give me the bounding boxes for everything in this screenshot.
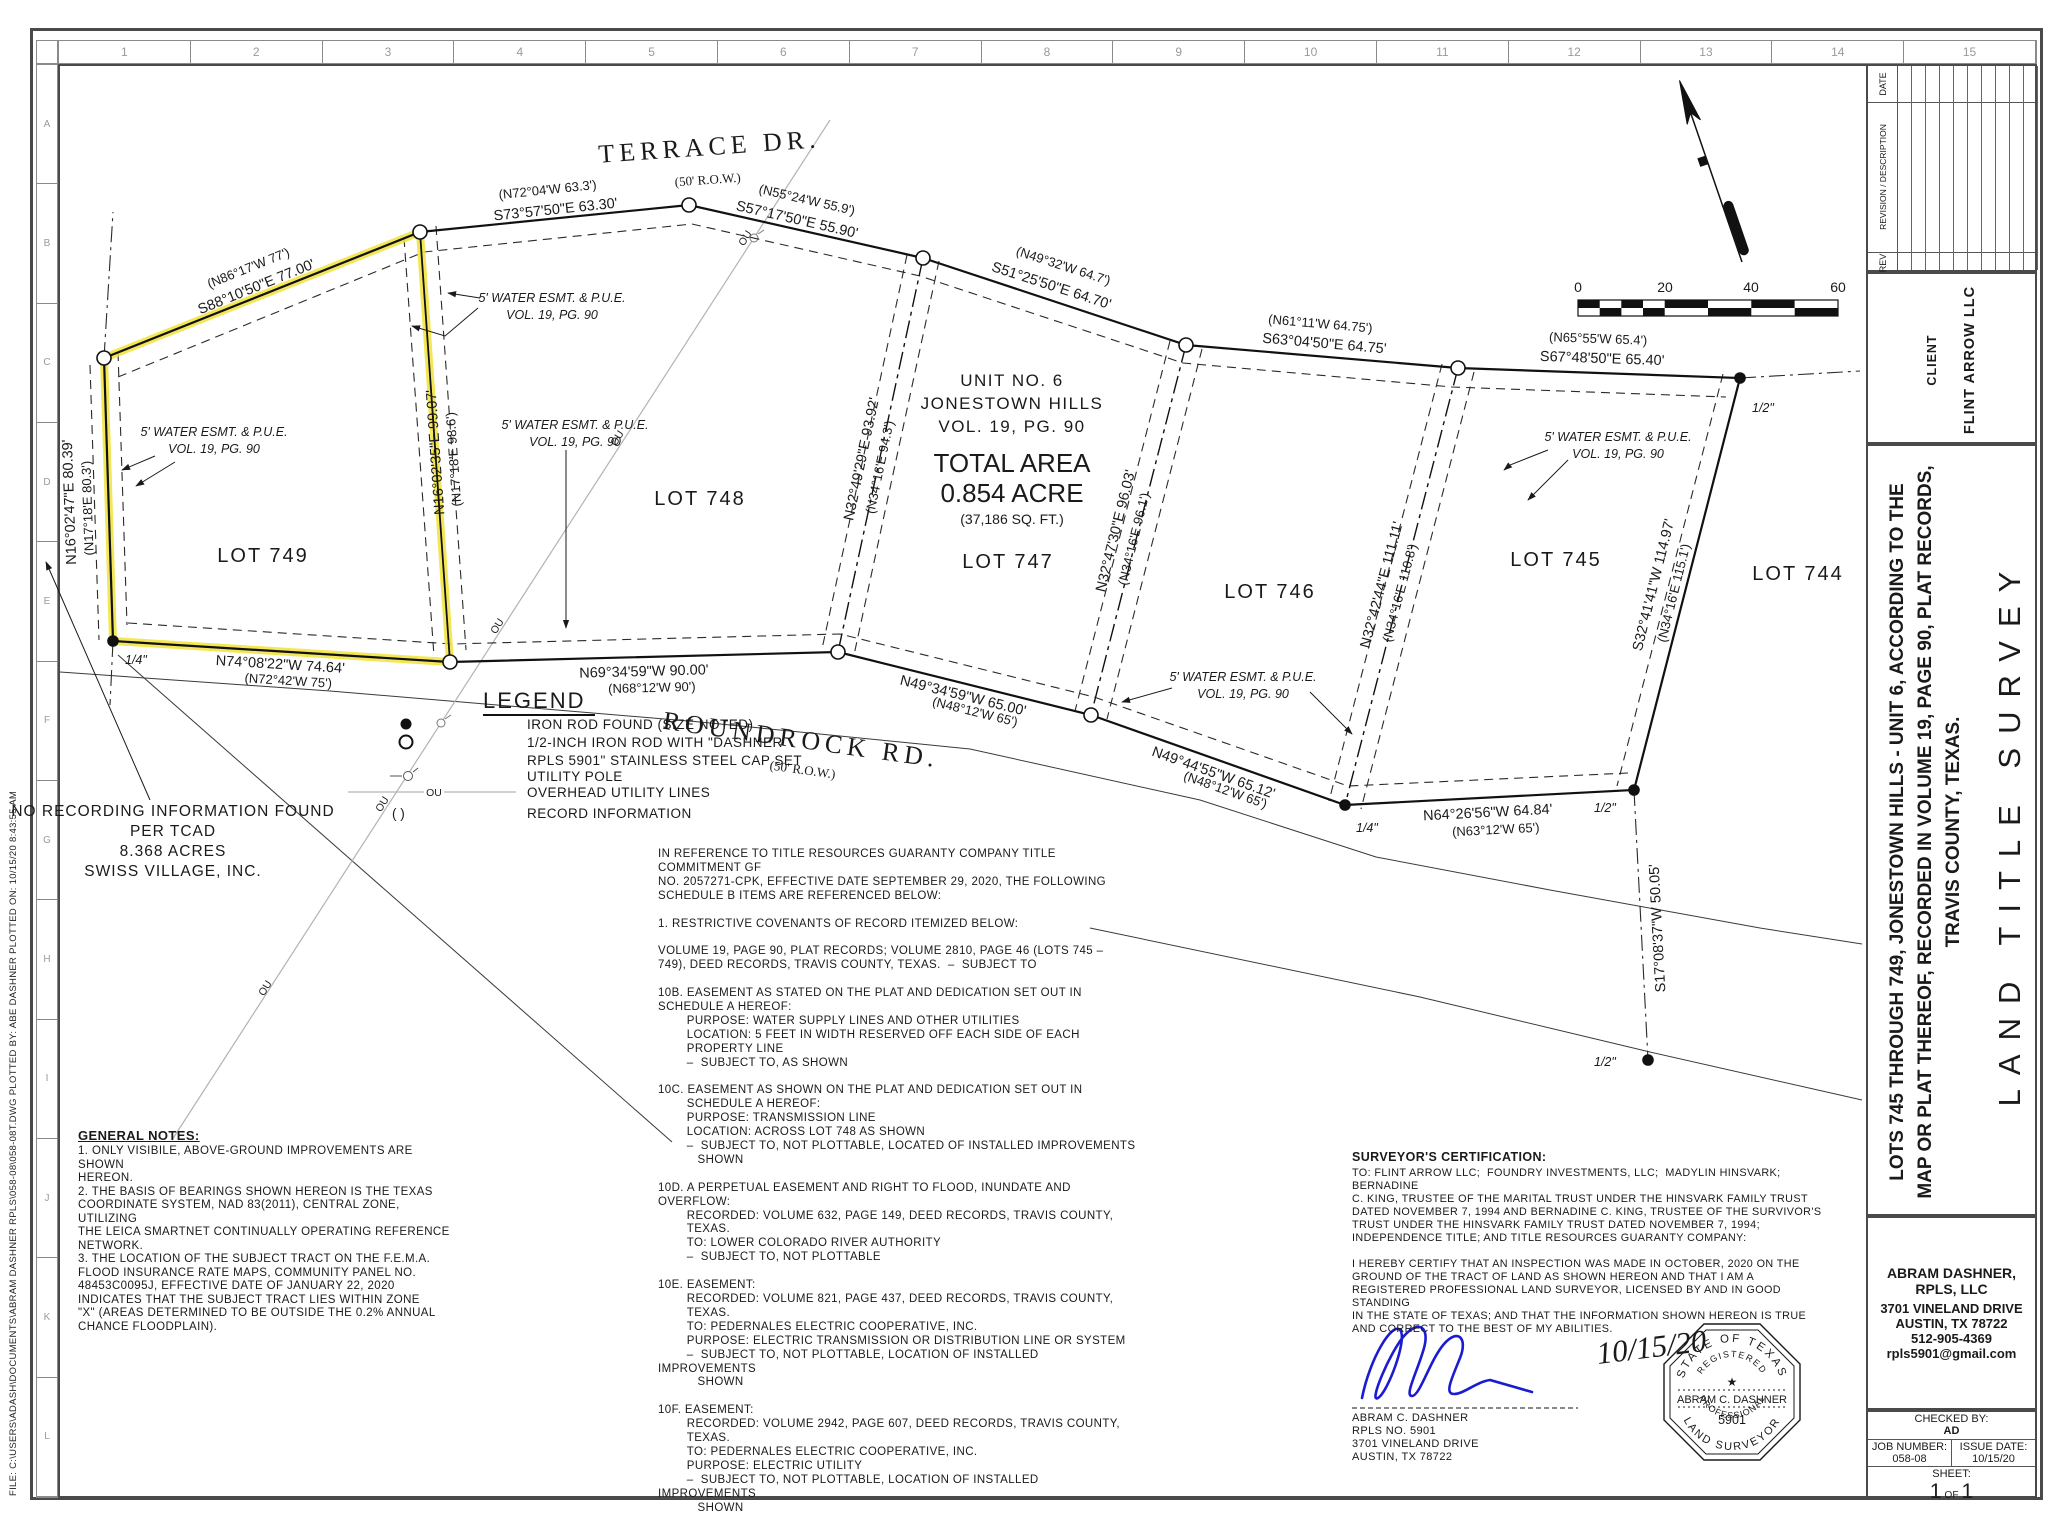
- surveyor-name: ABRAM C. DASHNER: [1352, 1412, 1479, 1425]
- certification-to: TO: FLINT ARROW LLC; FOUNDRY INVESTMENTS…: [1352, 1167, 1827, 1245]
- record-symbol: ( ): [392, 806, 405, 821]
- firm-addr2: AUSTIN, TX 78722: [1896, 1316, 2008, 1331]
- survey-type-title: LAND TITLE SURVEY: [1992, 558, 2028, 1107]
- svg-text:60: 60: [1830, 279, 1846, 295]
- svg-text:(N65°55'W 65.4'): (N65°55'W 65.4'): [1549, 329, 1648, 347]
- rod-size-label: 1/4": [1356, 821, 1378, 835]
- sheet-title-line2: MAP OR PLAT THEREOF, RECORDED IN VOLUME …: [1915, 465, 1937, 1198]
- revision-desc-header: REVISION / DESCRIPTION: [1878, 124, 1888, 230]
- svg-text:RECORD INFORMATION: RECORD INFORMATION: [527, 806, 692, 821]
- svg-text:5' WATER ESMT. & P.U.E.: 5' WATER ESMT. & P.U.E.: [501, 418, 648, 432]
- rod-size-label: 1/2": [1594, 1055, 1616, 1069]
- surveyor-addr2: AUSTIN, TX 78722: [1352, 1451, 1479, 1464]
- svg-text:5' WATER ESMT. & P.U.E.: 5' WATER ESMT. & P.U.E.: [1169, 670, 1316, 684]
- checked-by-label: CHECKED BY:: [1915, 1413, 1989, 1425]
- revision-grid: [1898, 66, 2039, 270]
- svg-text:VOL. 19, PG. 90: VOL. 19, PG. 90: [529, 435, 621, 449]
- issue-date-value: 10/15/20: [1972, 1453, 2015, 1465]
- iron-rod-found-icon: [401, 719, 412, 730]
- svg-text:OVERHEAD UTILITY LINES: OVERHEAD UTILITY LINES: [527, 785, 710, 800]
- job-number-value: 058-08: [1892, 1453, 1926, 1465]
- surveyor-rpls: RPLS NO. 5901: [1352, 1425, 1479, 1438]
- rod-size-label: 1/4": [125, 653, 147, 667]
- svg-text:8.368 ACRES: 8.368 ACRES: [120, 843, 227, 860]
- svg-text:5' WATER ESMT. & P.U.E.: 5' WATER ESMT. & P.U.E.: [1544, 430, 1691, 444]
- svg-text:N69°34'59"W 90.00': N69°34'59"W 90.00': [579, 662, 709, 681]
- issue-date-label: ISSUE DATE:: [1960, 1441, 2028, 1453]
- ou-label: OU: [373, 795, 392, 815]
- info-box: CHECKED BY: AD JOB NUMBER: 058-08 ISSUE …: [1866, 1410, 2037, 1498]
- signature-scribble: [1362, 1327, 1532, 1399]
- lot-746-label: LOT 746: [1224, 581, 1315, 603]
- svg-text:UTILITY POLE: UTILITY POLE: [527, 769, 623, 784]
- svg-text:20: 20: [1657, 279, 1673, 295]
- north-arrow-icon: [1672, 77, 1752, 264]
- revision-table: DATE REVISION / DESCRIPTION REV: [1866, 64, 2037, 272]
- svg-text:5' WATER ESMT. & P.U.E.: 5' WATER ESMT. & P.U.E.: [478, 291, 625, 305]
- ou-line-legend-icon: OU: [348, 787, 516, 799]
- sheet-title-line3: TRAVIS COUNTY, TEXAS.: [1943, 717, 1965, 948]
- svg-text:S67°48'50"E 65.40': S67°48'50"E 65.40': [1540, 349, 1665, 369]
- svg-text:VOL. 19, PG. 90: VOL. 19, PG. 90: [1197, 687, 1289, 701]
- sheet-of: OF: [1945, 1490, 1959, 1501]
- certification-title: SURVEYOR'S CERTIFICATION:: [1352, 1150, 1827, 1164]
- svg-text:40: 40: [1743, 279, 1759, 295]
- total-area-sqft: (37,186 SQ. FT.): [960, 511, 1063, 527]
- lot749-highlight: [104, 232, 450, 662]
- certification-body: I HEREBY CERTIFY THAT AN INSPECTION WAS …: [1352, 1258, 1827, 1336]
- total-area-label: TOTAL AREA: [933, 448, 1091, 478]
- scale-bar: 0 20 40 60: [1574, 279, 1846, 316]
- unit-area-block: UNIT NO. 6 JONESTOWN HILLS VOL. 19, PG. …: [921, 371, 1104, 527]
- sheet-label: SHEET:: [1932, 1468, 1971, 1480]
- sheet-number: 1: [1930, 1480, 1942, 1503]
- survey-sheet: FILE: C:\USERS\ADASH\DOCUMENTS\ABRAM DAS…: [0, 0, 2048, 1536]
- rod-size-label: 1/2": [1752, 401, 1774, 415]
- utility-pole-legend-icon: [390, 768, 418, 781]
- revision-date-header: DATE: [1878, 72, 1888, 95]
- client-label: CLIENT: [1925, 334, 1939, 385]
- ou-label: OU: [256, 979, 275, 999]
- svg-text:0: 0: [1574, 279, 1582, 295]
- no-recording-note: NO RECORDING INFORMATION FOUND PER TCAD …: [11, 562, 334, 880]
- sheet-title-box: LOTS 745 THROUGH 749, JONESTOWN HILLS - …: [1866, 444, 2037, 1216]
- boundary-lines: [104, 205, 1740, 805]
- legend: LEGEND OU ( ) IRON ROD FOUND (SIZE NOTED…: [348, 688, 802, 821]
- lot-747-label: LOT 747: [962, 551, 1053, 573]
- terrace-row-label: (50' R.O.W.): [674, 170, 741, 190]
- svg-text:VOL. 19, PG. 90: VOL. 19, PG. 90: [506, 308, 598, 322]
- ou-label: OU: [488, 617, 507, 637]
- revision-rev-header: REV: [1878, 254, 1888, 273]
- svg-text:SWISS VILLAGE, INC.: SWISS VILLAGE, INC.: [84, 863, 262, 880]
- easement-lines: [90, 224, 1726, 809]
- firm-email: rpls5901@gmail.com: [1887, 1346, 2017, 1361]
- svg-text:VOL. 19, PG. 90: VOL. 19, PG. 90: [168, 442, 260, 456]
- lot-749-label: LOT 749: [217, 545, 308, 567]
- svg-text:(N68°12'W 90'): (N68°12'W 90'): [608, 679, 696, 696]
- total-area-value: 0.854 ACRE: [940, 478, 1083, 508]
- general-notes-title: GENERAL NOTES:: [78, 1128, 458, 1143]
- svg-text:5' WATER ESMT. & P.U.E.: 5' WATER ESMT. & P.U.E.: [140, 425, 287, 439]
- lot-745-label: LOT 745: [1510, 549, 1601, 571]
- client-name: FLINT ARROW LLC: [1962, 286, 1978, 434]
- svg-text:(N63°12'W 65'): (N63°12'W 65'): [1452, 820, 1540, 840]
- lot-744-label: LOT 744: [1752, 563, 1843, 585]
- seal-star-icon: ★: [1727, 1375, 1738, 1389]
- svg-text:PER TCAD: PER TCAD: [130, 823, 216, 840]
- iron-rod-set-icon: [400, 736, 413, 749]
- svg-text:OU: OU: [426, 787, 442, 799]
- svg-text:N16°02'47"E 80.39': N16°02'47"E 80.39': [60, 439, 80, 565]
- water-easement-labels: 5' WATER ESMT. & P.U.E.VOL. 19, PG. 90 5…: [140, 291, 1691, 701]
- svg-text:VOL. 19, PG. 90: VOL. 19, PG. 90: [1572, 447, 1664, 461]
- legend-title: LEGEND: [483, 688, 585, 713]
- svg-text:S17°08'37"W 50.05': S17°08'37"W 50.05': [1647, 863, 1670, 992]
- job-number-label: JOB NUMBER:: [1872, 1441, 1947, 1453]
- general-notes-text: 1. ONLY VISIBILE, ABOVE-GROUND IMPROVEME…: [78, 1145, 458, 1334]
- firm-name: ABRAM DASHNER, RPLS, LLC: [1868, 1265, 2035, 1297]
- schedule-b-notes: IN REFERENCE TO TITLE RESOURCES GUARANTY…: [658, 848, 1136, 1516]
- checked-by-value: AD: [1944, 1425, 1960, 1437]
- sheet-title-line1: LOTS 745 THROUGH 749, JONESTOWN HILLS - …: [1887, 483, 1909, 1180]
- rod-size-label: 1/2": [1594, 801, 1616, 815]
- seal-name: ABRAM C. DASHNER: [1677, 1394, 1787, 1406]
- surveyor-addr1: 3701 VINELAND DRIVE: [1352, 1438, 1479, 1451]
- unit-line: UNIT NO. 6: [960, 371, 1063, 390]
- sheet-total: 1: [1962, 1480, 1974, 1503]
- general-notes: GENERAL NOTES: 1. ONLY VISIBILE, ABOVE-G…: [78, 1128, 458, 1334]
- firm-box: ABRAM DASHNER, RPLS, LLC 3701 VINELAND D…: [1866, 1216, 2037, 1410]
- svg-text:NO RECORDING INFORMATION FOUND: NO RECORDING INFORMATION FOUND: [11, 803, 334, 820]
- svg-text:1/2-INCH IRON ROD WITH "DASHNE: 1/2-INCH IRON ROD WITH "DASHNER: [527, 735, 783, 750]
- surveyor-seal: STATE OF TEXAS REGISTERED ★ ABRAM C. DAS…: [1664, 1324, 1800, 1460]
- client-box: CLIENT FLINT ARROW LLC: [1866, 272, 2037, 444]
- firm-addr1: 3701 VINELAND DRIVE: [1880, 1301, 2022, 1316]
- surveyor-certification: SURVEYOR'S CERTIFICATION: TO: FLINT ARRO…: [1352, 1150, 1827, 1336]
- terrace-dr-label: TERRACE DR.: [597, 124, 821, 168]
- unit-line: VOL. 19, PG. 90: [938, 417, 1085, 436]
- unit-line: JONESTOWN HILLS: [921, 394, 1104, 413]
- lot-748-label: LOT 748: [654, 488, 745, 510]
- firm-phone: 512-905-4369: [1911, 1331, 1992, 1346]
- surveyor-name-block: ABRAM C. DASHNER RPLS NO. 5901 3701 VINE…: [1352, 1412, 1479, 1464]
- svg-text:IRON ROD FOUND (SIZE NOTED): IRON ROD FOUND (SIZE NOTED): [527, 717, 754, 732]
- svg-text:RPLS 5901" STAINLESS STEEL CAP: RPLS 5901" STAINLESS STEEL CAP SET: [527, 753, 802, 768]
